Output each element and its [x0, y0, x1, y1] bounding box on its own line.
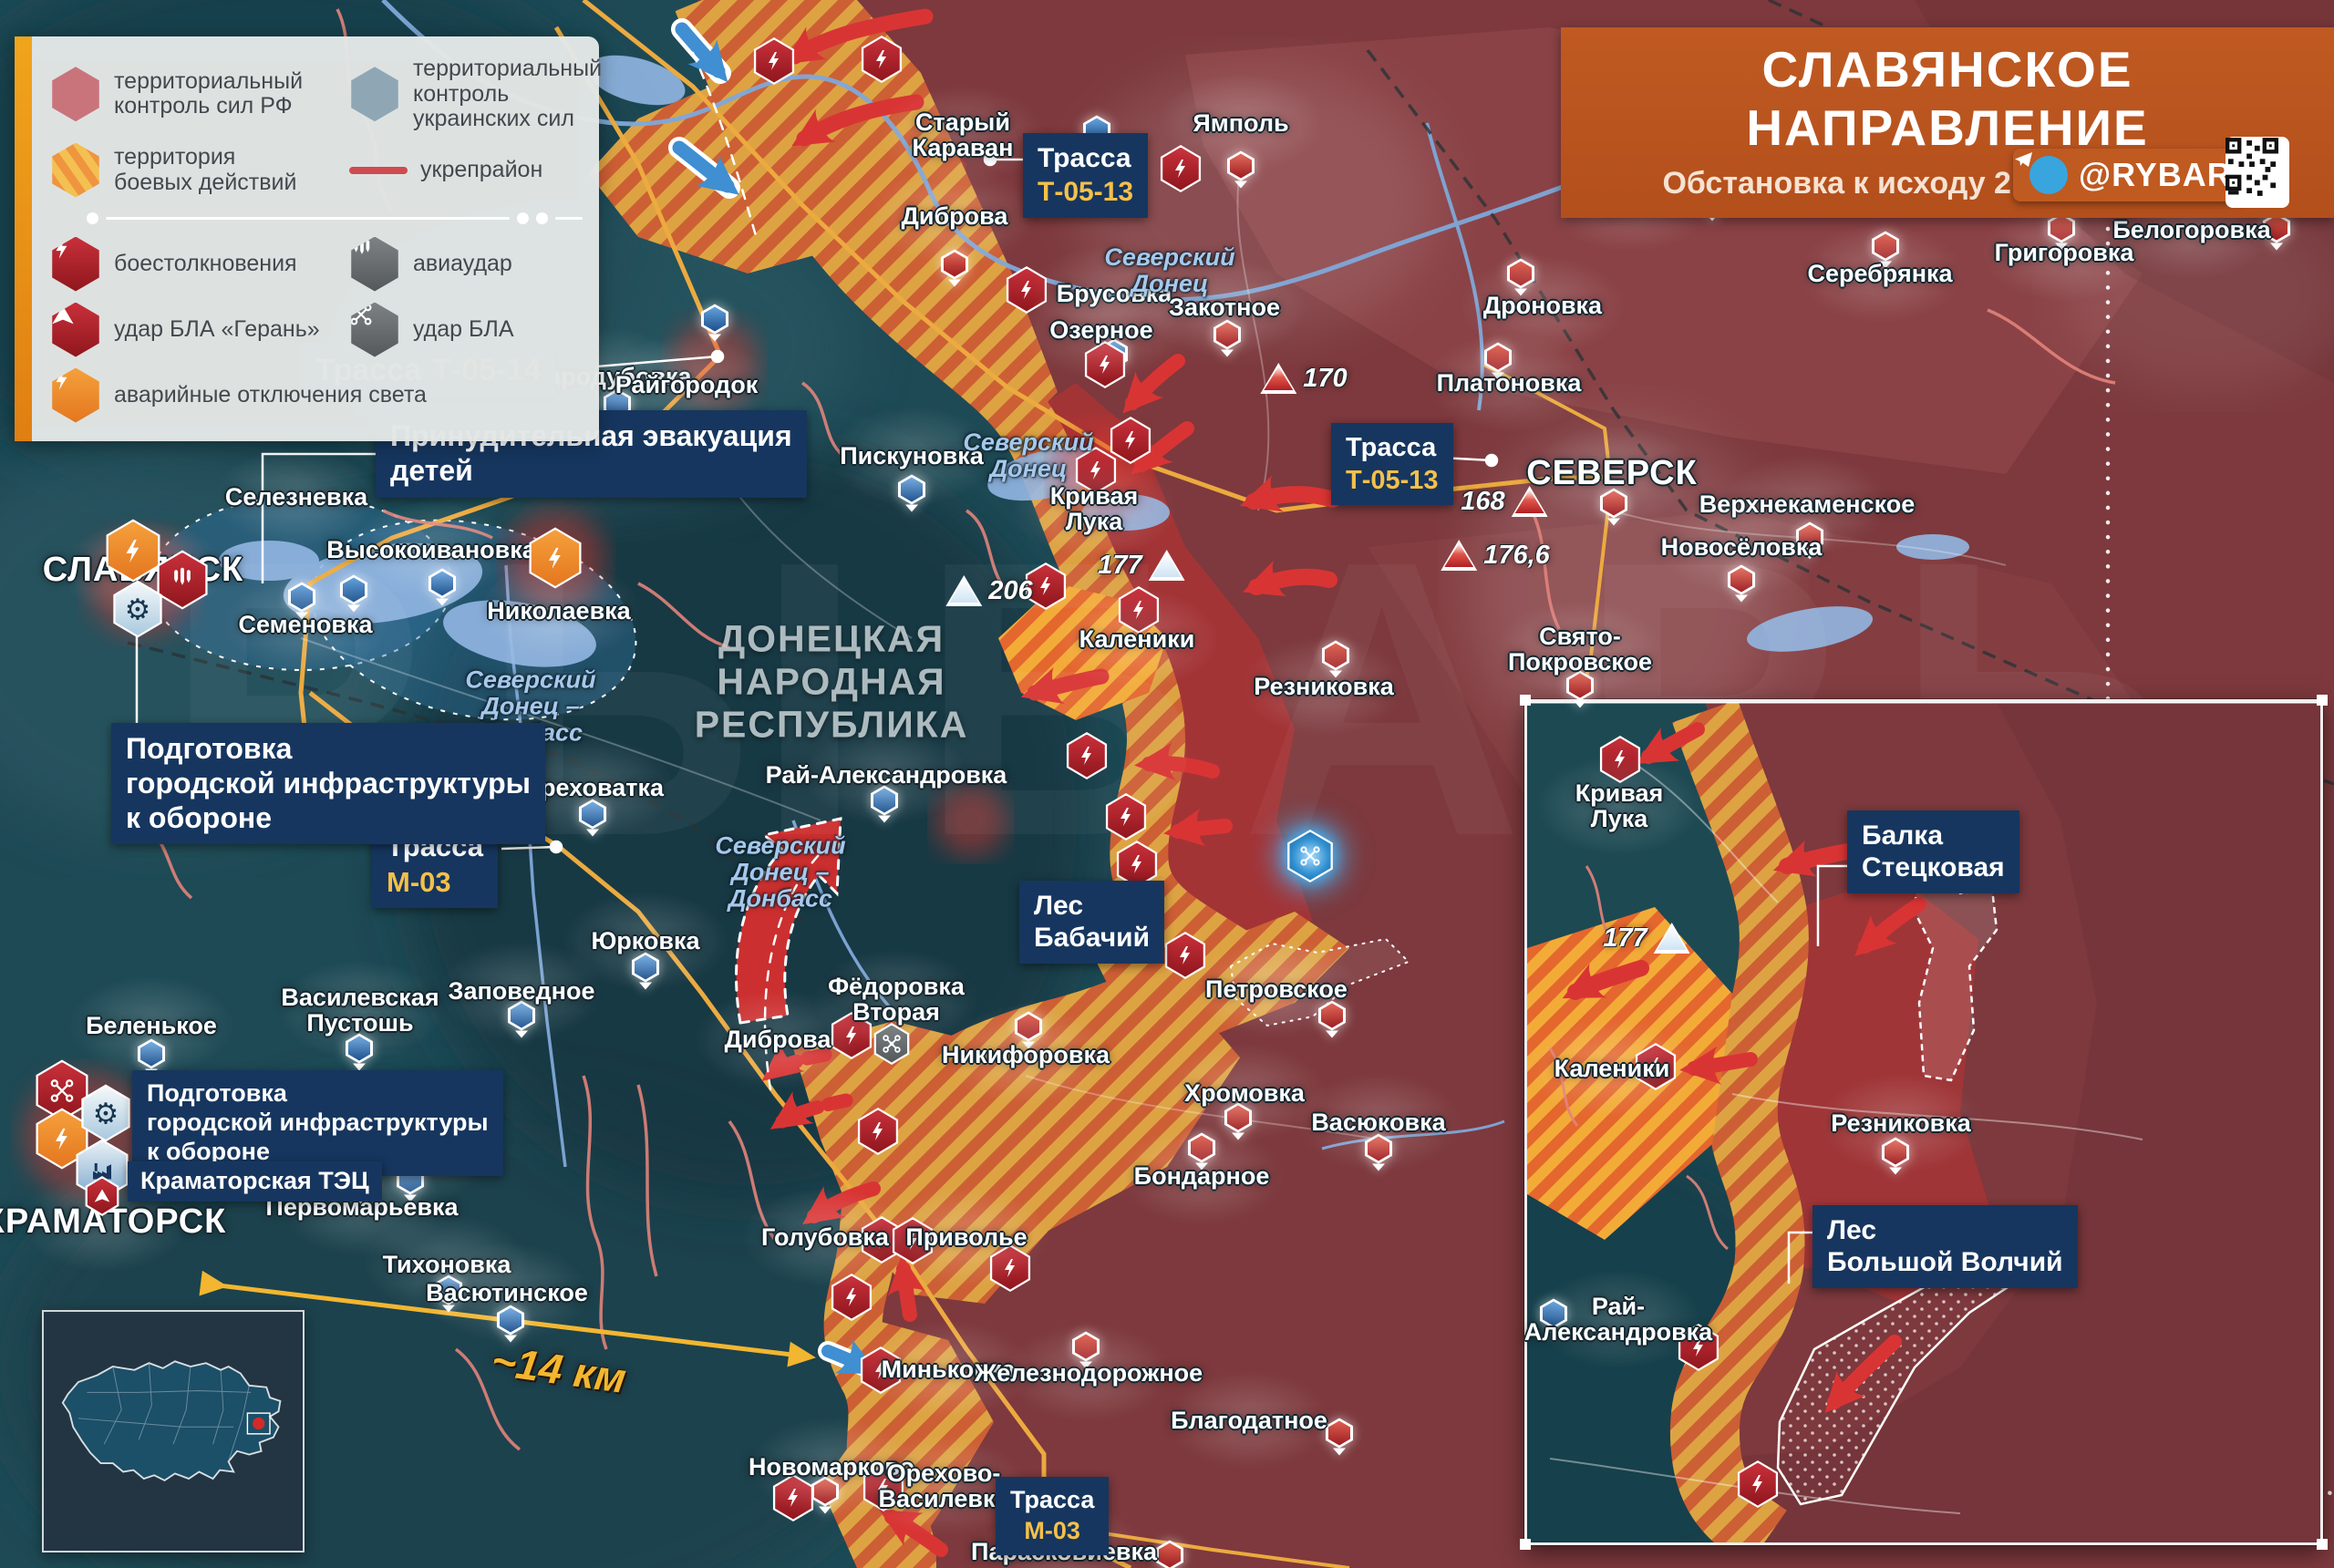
town-label: Бондарное: [1134, 1163, 1270, 1189]
callout-highway-t0513-top: ТрассаТ-05-13: [1023, 133, 1148, 218]
town-label: Серебрянка: [1807, 261, 1952, 286]
legend-item-ua-control: территориальный контроль украинских сил: [349, 57, 602, 132]
legend-item-geran: удар БЛА «Герань»: [50, 303, 344, 357]
clash-icon: [50, 237, 101, 292]
river-label: Северский Донец – Донбасс: [715, 832, 845, 912]
channel-handle: @RYBAR: [2079, 156, 2232, 194]
town-label: Ямполь: [1193, 110, 1288, 136]
height-triangle-icon: [1149, 550, 1185, 581]
clash-icon: [1104, 793, 1148, 841]
legend-item-rf-control: территориальный контроль сил РФ: [50, 57, 344, 132]
combat-zone-icon: [50, 143, 101, 198]
town-label: Рай-Александровка: [766, 762, 1007, 788]
town-label: Николаевка: [487, 598, 630, 624]
height-marker: 168: [1461, 486, 1547, 517]
callout-highway-m03-bottom: ТрассаМ-03: [996, 1477, 1109, 1555]
callout-balka-stetskovaya: Балка Стецковая: [1847, 810, 2019, 893]
town-label: Никифоровка: [942, 1042, 1110, 1068]
river-label: Северский Донец: [963, 429, 1093, 482]
height-triangle-icon: [945, 575, 982, 606]
height-marker: 176,6: [1441, 540, 1550, 571]
town-label: Беленькое: [86, 1013, 217, 1038]
town-pin: [1156, 1541, 1183, 1568]
uav-strike-highlight-icon: [1286, 830, 1335, 882]
qr-code: [2226, 137, 2289, 208]
callout-tec: Краматорская ТЭЦ: [128, 1161, 382, 1202]
height-marker: 206: [945, 575, 1032, 606]
uav-strike-icon: [873, 1023, 911, 1065]
town-label: Васюковка: [1311, 1109, 1445, 1135]
power-outage-icon: [104, 520, 162, 583]
height-marker: 177: [1098, 550, 1184, 581]
clash-icon: [856, 1108, 900, 1155]
geran-uav-icon: [50, 303, 101, 357]
callout-forest-volchiy: Лес Большой Волчий: [1812, 1205, 2078, 1288]
telegram-channel-badge[interactable]: @RYBAR: [2013, 149, 2248, 201]
town-label: Диброва: [902, 203, 1008, 229]
legend-divider: [87, 212, 583, 224]
height-triangle-icon: [1441, 540, 1477, 571]
height-triangle-icon: [1512, 486, 1548, 517]
town-label: Райгородок: [615, 372, 758, 397]
clash-icon: [860, 36, 904, 83]
uav-icon: [349, 303, 400, 357]
height-triangle-icon: [1260, 363, 1296, 394]
town-label: Кривая Лука: [1050, 483, 1139, 534]
town-label: Дроновка: [1483, 293, 1602, 318]
town-label: Платоновка: [1437, 370, 1582, 396]
town-label: Новосёловка: [1661, 534, 1823, 560]
callout-highway-t0513-right: ТрассаТ-05-13: [1331, 423, 1453, 505]
town-label: Голубовка: [761, 1224, 889, 1250]
height-marker: 170: [1260, 363, 1347, 394]
town-label: Старый Караван: [913, 109, 1014, 160]
town-label: Семеновка: [238, 612, 372, 637]
town-label: Пискуновка: [840, 443, 983, 469]
town-label: Благодатное: [1171, 1408, 1327, 1433]
rf-control-icon: [50, 67, 101, 121]
power-outage-icon: [527, 528, 583, 589]
callout-infrastructure-slavyansk: Подготовка городской инфраструктуры к об…: [111, 723, 545, 844]
legend-item-airstrike: авиаудар: [349, 237, 583, 292]
legend-item-combat-zone: территория боевых действий: [50, 143, 344, 198]
legend-item-fortified: укрепрайон: [349, 143, 602, 198]
legend-item-outage: аварийные отключения света: [50, 368, 583, 423]
map-title: СЛАВЯНСКОЕ НАПРАВЛЕНИЕ: [1588, 40, 2307, 157]
town-label: Василевская Пустошь: [281, 985, 439, 1036]
town-label: Заповедное: [449, 978, 595, 1004]
town-label: Белогоровка: [2112, 217, 2270, 242]
town-label: СЕВЕРСК: [1526, 456, 1698, 492]
map-canvas: РЫБАРЬ: [0, 0, 2334, 1568]
callout-infrastructure-kramatorsk: Подготовка городской инфраструктуры к об…: [132, 1070, 503, 1176]
infrastructure-icon: ⚙: [79, 1085, 132, 1142]
town-label: Приволье: [905, 1224, 1027, 1250]
town-label: Резниковка: [1254, 674, 1393, 699]
town-label: Закотное: [1169, 294, 1280, 320]
power-outage-icon: [50, 368, 101, 423]
geran-strike-icon: [84, 1176, 120, 1216]
river-label: Северский Донец: [1104, 244, 1234, 297]
town-label: Свято- Покровское: [1508, 624, 1652, 675]
infrastructure-icon: ⚙: [111, 581, 164, 638]
legend-item-clashes: боестолкновения: [50, 237, 344, 292]
airstrike-icon: [349, 237, 400, 292]
town-label: Петровское: [1205, 976, 1348, 1002]
town-label: Каленики: [1079, 626, 1195, 652]
legend-panel: территориальный контроль сил РФ территор…: [15, 36, 599, 441]
legend-accent-bar: [15, 36, 32, 441]
town-label: Васютинское: [426, 1280, 588, 1305]
clash-icon: [1065, 732, 1109, 779]
telegram-icon: [2029, 156, 2068, 194]
legend-item-uav: удар БЛА: [349, 303, 583, 357]
clash-icon: [752, 37, 796, 85]
fortified-line-icon: [349, 167, 408, 174]
callout-forest-babachiy: Лес Бабачий: [1019, 881, 1164, 964]
ua-control-icon: [349, 67, 400, 121]
